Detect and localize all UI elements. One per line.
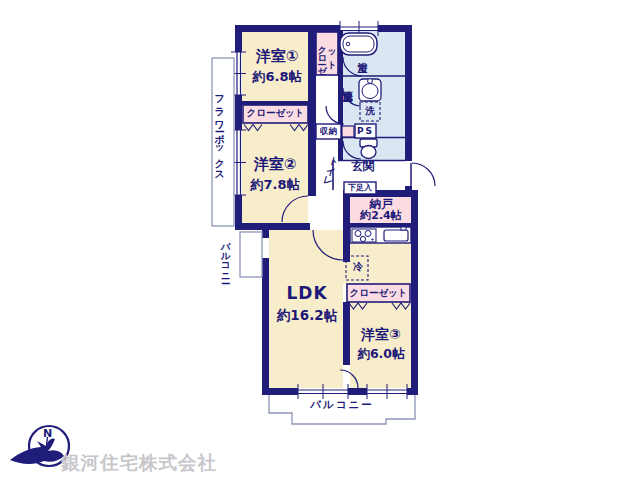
wall-top-left [235, 25, 340, 32]
entrance-door-arc [412, 163, 435, 186]
company-name: 銀河住宅株式会社 [61, 450, 217, 475]
room1-size: 約6.8帖 [242, 70, 312, 85]
storage-label: 収納 [316, 127, 341, 137]
room3-name: 洋室③ [352, 327, 410, 343]
washbasin-icon [359, 79, 381, 101]
bathtub-icon [340, 33, 377, 55]
room3-floor [350, 302, 411, 388]
wall-right-lower [411, 190, 418, 395]
balcony-left-outline [240, 232, 262, 277]
fridge-label: 冷 [349, 261, 367, 272]
wall-left-1 [235, 25, 242, 52]
laundry-label: 洗 [361, 106, 379, 117]
flower-box-label: フラワーボックス [214, 88, 225, 176]
room1-floor [242, 32, 308, 101]
room2-size: 約7.8帖 [238, 178, 312, 193]
closet1-label: クローゼット [317, 35, 337, 73]
wall-left-2 [235, 95, 242, 130]
shoe-box-label: 下足入 [346, 184, 374, 193]
wall-bottom-1 [262, 388, 298, 395]
mini-closet-box [342, 126, 354, 137]
entrance-label: 玄関 [345, 160, 381, 173]
stove-icon [352, 229, 376, 242]
ldk-name: LDK [272, 284, 342, 303]
wall-ldk-left-2 [262, 258, 269, 395]
wall-ldk-left-1 [262, 223, 269, 238]
logo-bird-icon [10, 438, 64, 464]
ldk-size: 約16.2帖 [268, 308, 346, 323]
wall-divider-upper [343, 190, 350, 262]
nando-size: 約2.4帖 [352, 210, 410, 222]
ps-label: PS [355, 126, 376, 136]
wall-mid-horizontal-left [235, 223, 310, 230]
room2-name: 洋室② [240, 156, 310, 173]
balcony-left-label: バルコニー [220, 235, 231, 278]
kitchen-counter [350, 227, 411, 243]
wall-room1-bottom [242, 101, 308, 105]
wall-right-upper-1 [405, 25, 412, 161]
room1-name: 洋室① [244, 48, 310, 65]
floorplan-page: N 洋室① 約6.8帖 洋室② 約7.8帖 洋室③ 約6.0帖 LDK 約16.… [0, 0, 640, 480]
balcony-bottom-label: バルコニー [290, 399, 394, 411]
toilet-icon [360, 139, 377, 159]
closet2-label: クローゼット [243, 108, 308, 119]
closet3-label: クローゼット [347, 288, 410, 299]
room3-size: 約6.0帖 [352, 347, 410, 361]
wall-bottom-2 [348, 388, 367, 395]
